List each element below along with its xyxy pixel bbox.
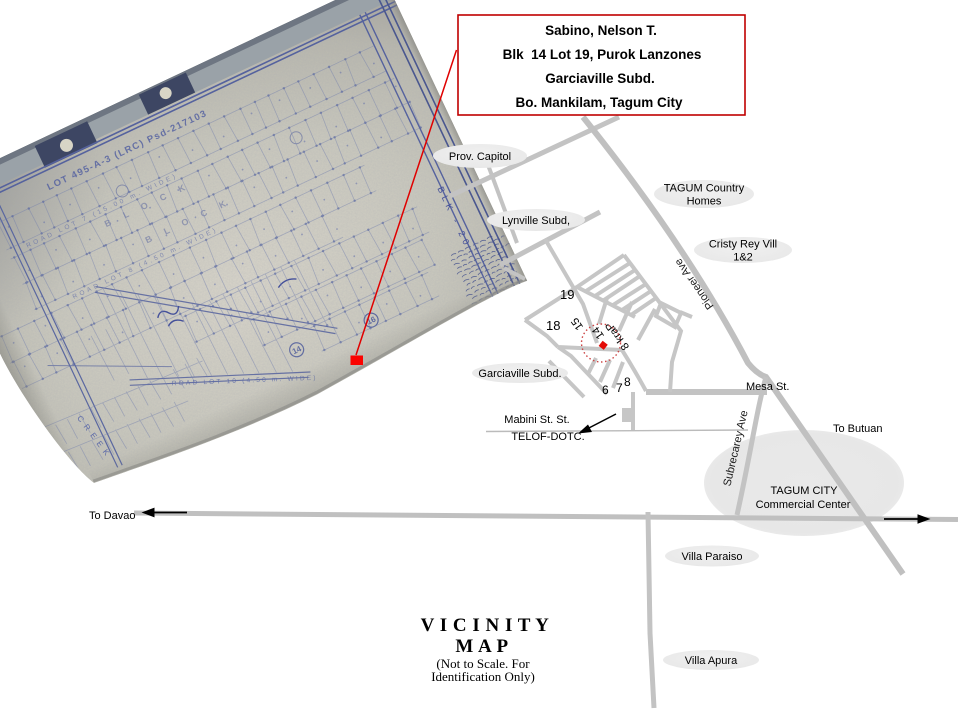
svg-text:Mesa St.: Mesa St. [746, 381, 789, 393]
svg-text:Identification Only): Identification Only) [431, 669, 535, 684]
svg-text:7: 7 [616, 381, 623, 395]
svg-text:Garciaville Subd.: Garciaville Subd. [478, 368, 561, 380]
svg-text:Pioneer Ave: Pioneer Ave [673, 256, 717, 311]
svg-text:Homes: Homes [687, 195, 722, 207]
svg-text:V I C I N I T Y: V I C I N I T Y [421, 615, 550, 636]
svg-text:Commercial Center: Commercial Center [756, 499, 851, 511]
svg-text:Cristy Rey Vill: Cristy Rey Vill [709, 238, 777, 250]
svg-text:To Butuan: To Butuan [833, 423, 883, 435]
svg-text:M A P: M A P [455, 636, 508, 657]
svg-text:8: 8 [624, 375, 631, 389]
svg-text:TELOF-DOTC.: TELOF-DOTC. [511, 431, 584, 443]
svg-text:Garciaville Subd.: Garciaville Subd. [545, 71, 655, 86]
svg-text:TAGUM Country: TAGUM Country [664, 182, 745, 194]
svg-text:Sabino, Nelson T.: Sabino, Nelson T. [545, 23, 657, 38]
svg-text:Villa Paraiso: Villa Paraiso [682, 551, 743, 563]
svg-text:18: 18 [546, 318, 560, 333]
svg-text:15: 15 [569, 315, 586, 332]
svg-text:19: 19 [560, 287, 574, 302]
svg-text:Villa Apura: Villa Apura [685, 655, 738, 667]
svg-text:1&2: 1&2 [733, 251, 753, 263]
svg-text:Bo. Mankilam, Tagum City: Bo. Mankilam, Tagum City [515, 95, 683, 110]
svg-text:TAGUM CITY: TAGUM CITY [770, 485, 838, 497]
svg-text:6: 6 [602, 383, 609, 397]
svg-text:Prov. Capitol: Prov. Capitol [449, 151, 511, 163]
svg-text:Mabini St. St.: Mabini St. St. [504, 414, 569, 426]
svg-text:Lynville Subd,: Lynville Subd, [502, 215, 570, 227]
svg-text:Blk 14 Lot 19, Purok Lanzones: Blk 14 Lot 19, Purok Lanzones [503, 47, 702, 62]
svg-text:8 kraP: 8 kraP [603, 319, 632, 352]
svg-text:To Davao: To Davao [89, 510, 135, 522]
